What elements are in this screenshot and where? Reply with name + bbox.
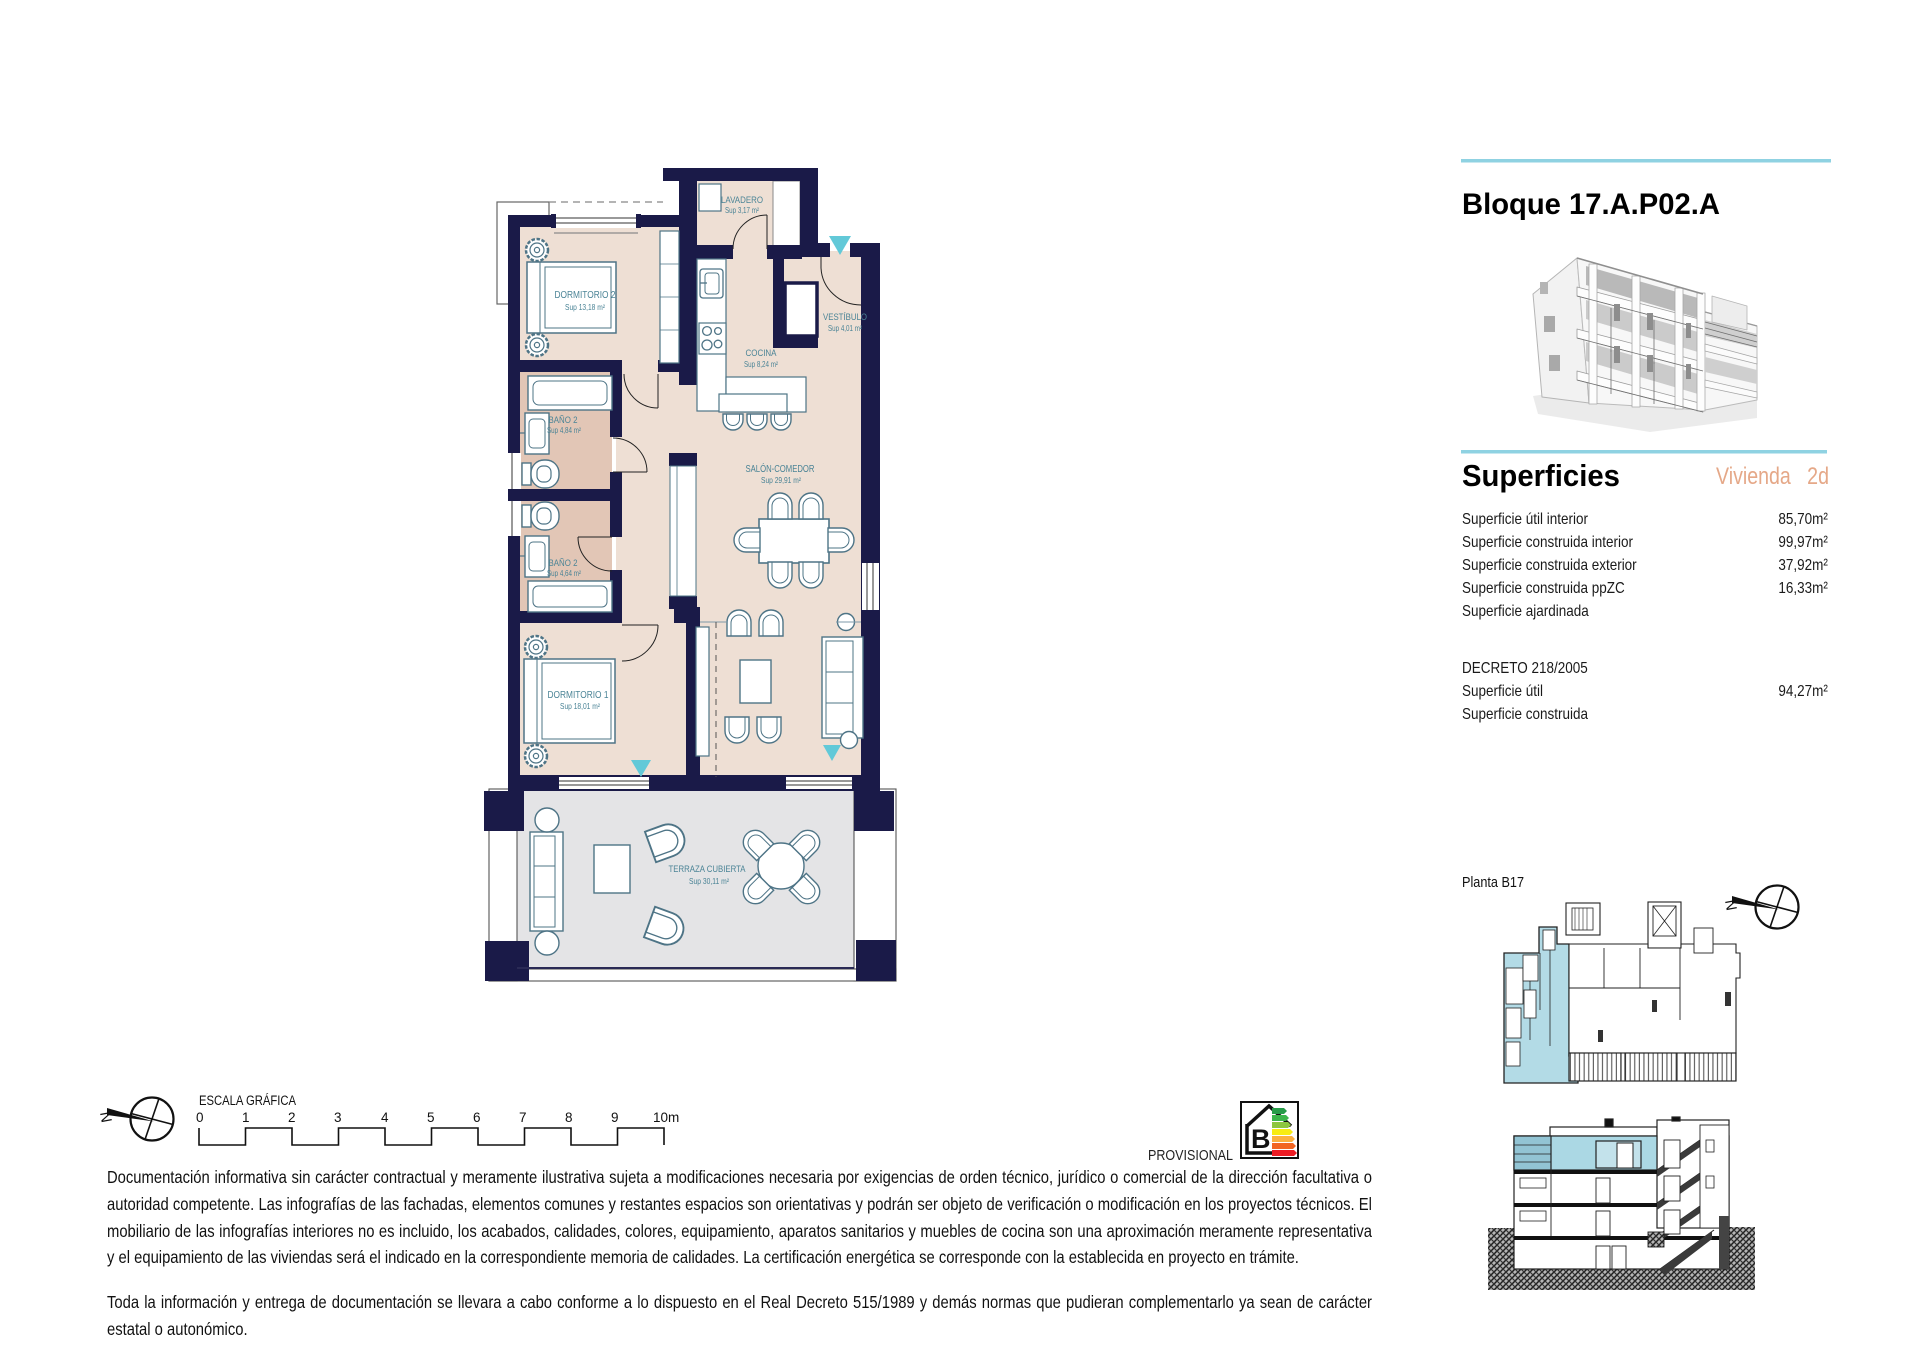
svg-text:4: 4 — [381, 1110, 389, 1125]
svg-text:LAVADERO: LAVADERO — [721, 195, 763, 206]
svg-text:VESTÍBULO: VESTÍBULO — [823, 312, 867, 323]
svg-text:Sup 4,01 m²: Sup 4,01 m² — [828, 324, 862, 333]
svg-text:Sup 3,17 m²: Sup 3,17 m² — [725, 206, 759, 215]
svg-text:Sup 29,91 m²: Sup 29,91 m² — [761, 476, 801, 485]
svg-text:ESCALA GRÁFICA: ESCALA GRÁFICA — [199, 1093, 296, 1108]
svg-text:DORMITORIO 2: DORMITORIO 2 — [555, 290, 616, 301]
svg-text:9: 9 — [611, 1110, 619, 1125]
svg-text:Sup 8,24 m²: Sup 8,24 m² — [744, 360, 778, 369]
svg-text:Sup 13,18 m²: Sup 13,18 m² — [565, 303, 605, 312]
svg-text:DORMITORIO 1: DORMITORIO 1 — [548, 690, 609, 701]
svg-text:Sup 30,11 m²: Sup 30,11 m² — [689, 877, 729, 886]
svg-text:6: 6 — [473, 1110, 481, 1125]
svg-text:10m: 10m — [653, 1110, 679, 1125]
svg-text:COCINA: COCINA — [746, 348, 778, 359]
svg-text:SALÓN-COMEDOR: SALÓN-COMEDOR — [746, 462, 815, 475]
svg-text:BAÑO 2: BAÑO 2 — [549, 558, 578, 569]
svg-text:B: B — [1251, 1124, 1271, 1154]
svg-text:3: 3 — [334, 1110, 342, 1125]
svg-text:Sup 18,01 m²: Sup 18,01 m² — [560, 702, 600, 711]
svg-text:Sup 4,84 m²: Sup 4,84 m² — [547, 426, 581, 435]
svg-text:0: 0 — [196, 1110, 204, 1125]
svg-text:BAÑO 2: BAÑO 2 — [549, 415, 578, 426]
svg-text:TERRAZA CUBIERTA: TERRAZA CUBIERTA — [669, 864, 747, 875]
svg-text:8: 8 — [565, 1110, 573, 1125]
svg-text:2: 2 — [288, 1110, 296, 1125]
svg-text:PROVISIONAL: PROVISIONAL — [1148, 1148, 1233, 1164]
svg-text:1: 1 — [242, 1110, 250, 1125]
svg-text:Sup 4,64 m²: Sup 4,64 m² — [547, 569, 581, 578]
svg-text:7: 7 — [519, 1110, 527, 1125]
svg-text:5: 5 — [427, 1110, 435, 1125]
